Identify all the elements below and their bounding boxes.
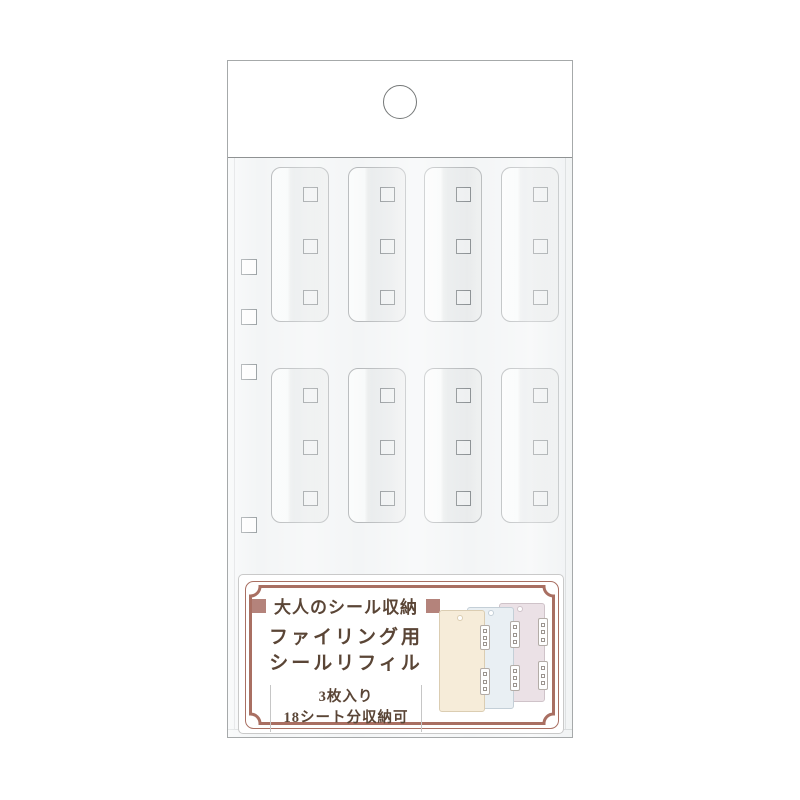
tab-hole bbox=[513, 669, 517, 673]
pocket-strip bbox=[424, 368, 482, 523]
refill-sheets-illustration bbox=[434, 595, 554, 720]
pocket-hole bbox=[303, 187, 318, 202]
pocket-hole bbox=[456, 290, 471, 305]
bag-right-seam bbox=[565, 158, 566, 729]
tab-hole bbox=[541, 666, 545, 670]
pocket-strip bbox=[348, 368, 406, 523]
label-title-row: 大人のシール収納 bbox=[253, 593, 439, 618]
pocket-hole bbox=[380, 388, 395, 403]
pocket-hole bbox=[380, 239, 395, 254]
binder-hole bbox=[241, 309, 257, 325]
pocket-hole bbox=[533, 440, 548, 455]
product-name: ファイリング用 シールリフィル bbox=[253, 625, 439, 677]
pocket-hole bbox=[456, 239, 471, 254]
spec-capacity: 18シート分収納可 bbox=[271, 708, 421, 729]
pocket-hole bbox=[456, 491, 471, 506]
product-name-line2: シールリフィル bbox=[253, 651, 439, 677]
binder-hole bbox=[241, 517, 257, 533]
tab-hole bbox=[513, 683, 517, 687]
pocket-hole bbox=[303, 440, 318, 455]
sheet-tab bbox=[480, 668, 490, 695]
tab-hole bbox=[483, 672, 487, 676]
pocket-hole bbox=[533, 491, 548, 506]
pocket-strip bbox=[348, 167, 406, 322]
pocket-hole bbox=[456, 187, 471, 202]
tab-hole bbox=[483, 642, 487, 646]
pocket-hole bbox=[303, 239, 318, 254]
product-image: 大人のシール収納 ファイリング用 シールリフィル 3枚入り 18シート分収納可 bbox=[0, 0, 800, 800]
pocket-hole bbox=[380, 187, 395, 202]
pocket-hole bbox=[303, 290, 318, 305]
pocket-hole bbox=[380, 491, 395, 506]
binder-hole bbox=[241, 364, 257, 380]
hang-hole-icon bbox=[383, 85, 417, 119]
sheet-tab bbox=[510, 665, 520, 691]
bag-left-seam bbox=[234, 158, 235, 729]
tab-hole bbox=[541, 681, 545, 685]
pocket-hole bbox=[380, 290, 395, 305]
tab-hole bbox=[483, 629, 487, 633]
pocket-hole bbox=[303, 491, 318, 506]
pocket-hole bbox=[533, 239, 548, 254]
product-name-line1: ファイリング用 bbox=[253, 625, 439, 651]
pocket-hole bbox=[533, 187, 548, 202]
package-bag: 大人のシール収納 ファイリング用 シールリフィル 3枚入り 18シート分収納可 bbox=[227, 60, 573, 738]
sheet-tab bbox=[538, 661, 548, 690]
tab-hole bbox=[513, 633, 517, 637]
binder-hole bbox=[241, 259, 257, 275]
header-card bbox=[228, 61, 572, 158]
tab-hole bbox=[541, 623, 545, 627]
pocket-hole bbox=[456, 440, 471, 455]
sheet-tab bbox=[480, 625, 490, 650]
pocket-hole bbox=[533, 290, 548, 305]
spec-count: 3枚入り bbox=[271, 687, 421, 708]
pocket-hole bbox=[380, 440, 395, 455]
pocket-strip bbox=[424, 167, 482, 322]
tab-hole bbox=[541, 638, 545, 642]
tab-hole bbox=[513, 625, 517, 629]
sheet-hang-hole-icon bbox=[488, 610, 494, 616]
pocket-strip bbox=[271, 167, 329, 322]
tab-hole bbox=[513, 676, 517, 680]
tab-hole bbox=[513, 640, 517, 644]
title-accent-square-left bbox=[252, 599, 266, 613]
cream-refill-sheet bbox=[439, 610, 485, 712]
sheet-tab bbox=[538, 618, 548, 646]
tab-hole bbox=[541, 674, 545, 678]
pocket-strip bbox=[271, 368, 329, 523]
sheet-tab bbox=[510, 621, 520, 648]
label-card: 大人のシール収納 ファイリング用 シールリフィル 3枚入り 18シート分収納可 bbox=[238, 574, 564, 734]
sheet-hang-hole-icon bbox=[457, 615, 463, 621]
pocket-hole bbox=[456, 388, 471, 403]
label-title: 大人のシール収納 bbox=[274, 593, 418, 618]
pocket-hole bbox=[303, 388, 318, 403]
pocket-hole bbox=[533, 388, 548, 403]
tab-hole bbox=[483, 687, 487, 691]
label-text-column: 大人のシール収納 ファイリング用 シールリフィル 3枚入り 18シート分収納可 bbox=[253, 591, 439, 732]
pocket-strip bbox=[501, 167, 559, 322]
sheet-hang-hole-icon bbox=[517, 606, 523, 612]
tab-hole bbox=[541, 630, 545, 634]
tab-hole bbox=[483, 636, 487, 640]
spec-block: 3枚入り 18シート分収納可 bbox=[270, 685, 422, 732]
pocket-strip bbox=[501, 368, 559, 523]
tab-hole bbox=[483, 680, 487, 684]
